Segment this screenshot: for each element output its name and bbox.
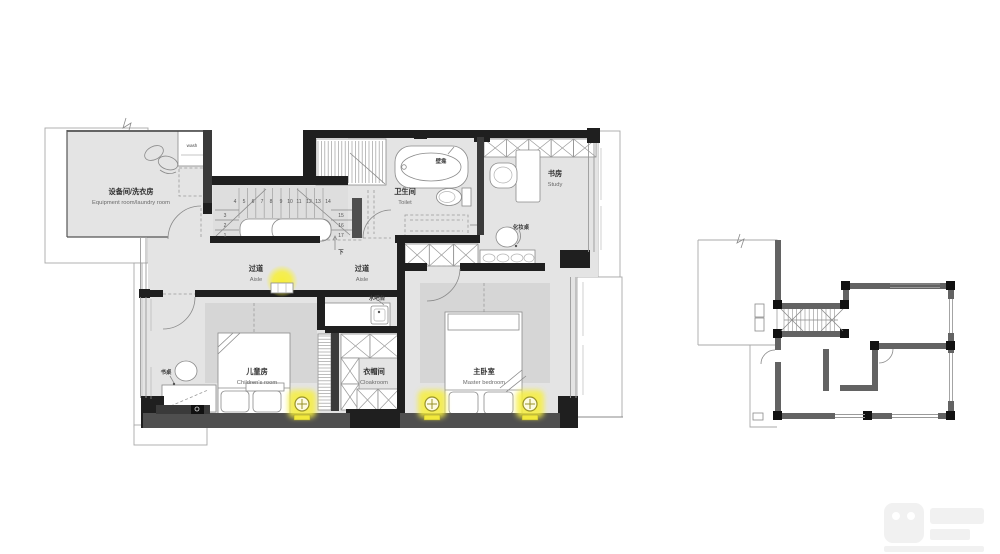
cloakroom-wardrobe-bottom <box>357 389 399 411</box>
label-aisle-left-en: Aisle <box>250 277 263 283</box>
master-room-fixtures <box>445 312 526 417</box>
stair-number: 6 <box>252 199 255 205</box>
toilet-bowl <box>462 188 471 206</box>
stair-number: 2 <box>224 223 227 229</box>
label-master-zh: 主卧室 <box>473 367 495 376</box>
pillow <box>253 391 281 412</box>
stair-number: 16 <box>338 223 344 229</box>
stair-number: 12 <box>306 199 312 205</box>
label-aisle-left-zh: 过道 <box>249 264 264 273</box>
stair-number: 5 <box>243 199 246 205</box>
label-equipment-en: Equipment room/laundry room <box>92 200 170 206</box>
stair-number: 7 <box>261 199 264 205</box>
stair-number: 3 <box>224 213 227 219</box>
stair-number: 9 <box>280 199 283 205</box>
mini-door-arc <box>761 350 775 364</box>
stair-number: 15 <box>338 213 344 219</box>
label-cloakroom-en: Cloakroom <box>360 380 388 386</box>
stair-number: 11 <box>296 199 301 205</box>
label-toilet-en: Toilet <box>398 200 412 206</box>
stair-number: 10 <box>287 199 293 205</box>
pillow <box>221 391 249 412</box>
lights <box>266 265 298 297</box>
stair-number: 8 <box>270 199 273 205</box>
label-equipment-zh: 设备间/洗衣房 <box>108 187 153 196</box>
label-study-en: Study <box>548 182 563 188</box>
master-wardrobe <box>405 244 478 266</box>
children-chair <box>175 361 197 381</box>
label-children-en: Children's room <box>237 380 278 386</box>
mini-columns <box>773 281 955 420</box>
cloakroom-wardrobe-left <box>341 358 359 410</box>
stair-number: 14 <box>325 199 331 205</box>
label-wash: wash <box>187 143 198 148</box>
mini-plan <box>698 234 955 427</box>
stair-number: 17 <box>338 233 344 239</box>
floor-plan-svg: 设备间/洗衣房 Equipment room/laundry room wash… <box>0 0 1000 554</box>
stair-number: 13 <box>315 199 321 205</box>
cloakroom-wardrobe-top <box>341 334 399 358</box>
pillow <box>449 392 478 414</box>
label-desk: 书桌 <box>161 368 172 376</box>
label-toilet-zh: 卫生间 <box>394 187 416 196</box>
label-study-zh: 书房 <box>548 169 562 178</box>
label-water-bar: 水吧台 <box>369 294 386 302</box>
floor-plan-page: { "colors": { "floor_fill": "#e4e4e4", "… <box>0 0 1000 554</box>
spotlight <box>288 390 316 420</box>
label-niche: 壁龛 <box>436 157 447 165</box>
mini-windows <box>835 284 953 418</box>
label-master-en: Master bedroom <box>463 380 505 386</box>
watermark <box>884 503 984 552</box>
label-aisle-right-en: Aisle <box>356 277 369 283</box>
pillow <box>484 392 513 414</box>
stair-number: 1 <box>224 233 227 239</box>
study-desk <box>516 150 540 202</box>
spotlight <box>418 390 446 420</box>
spotlight <box>516 390 544 420</box>
label-children-zh: 儿童房 <box>245 367 268 376</box>
water-bar <box>318 300 390 327</box>
label-down: 下 <box>338 249 344 256</box>
mini-door-arc <box>879 349 893 363</box>
label-aisle-right-zh: 过道 <box>355 264 370 273</box>
label-cloakroom-zh: 衣帽间 <box>363 367 385 376</box>
label-dressing-table: 化妆桌 <box>513 223 530 231</box>
stair-number: 4 <box>234 199 237 205</box>
